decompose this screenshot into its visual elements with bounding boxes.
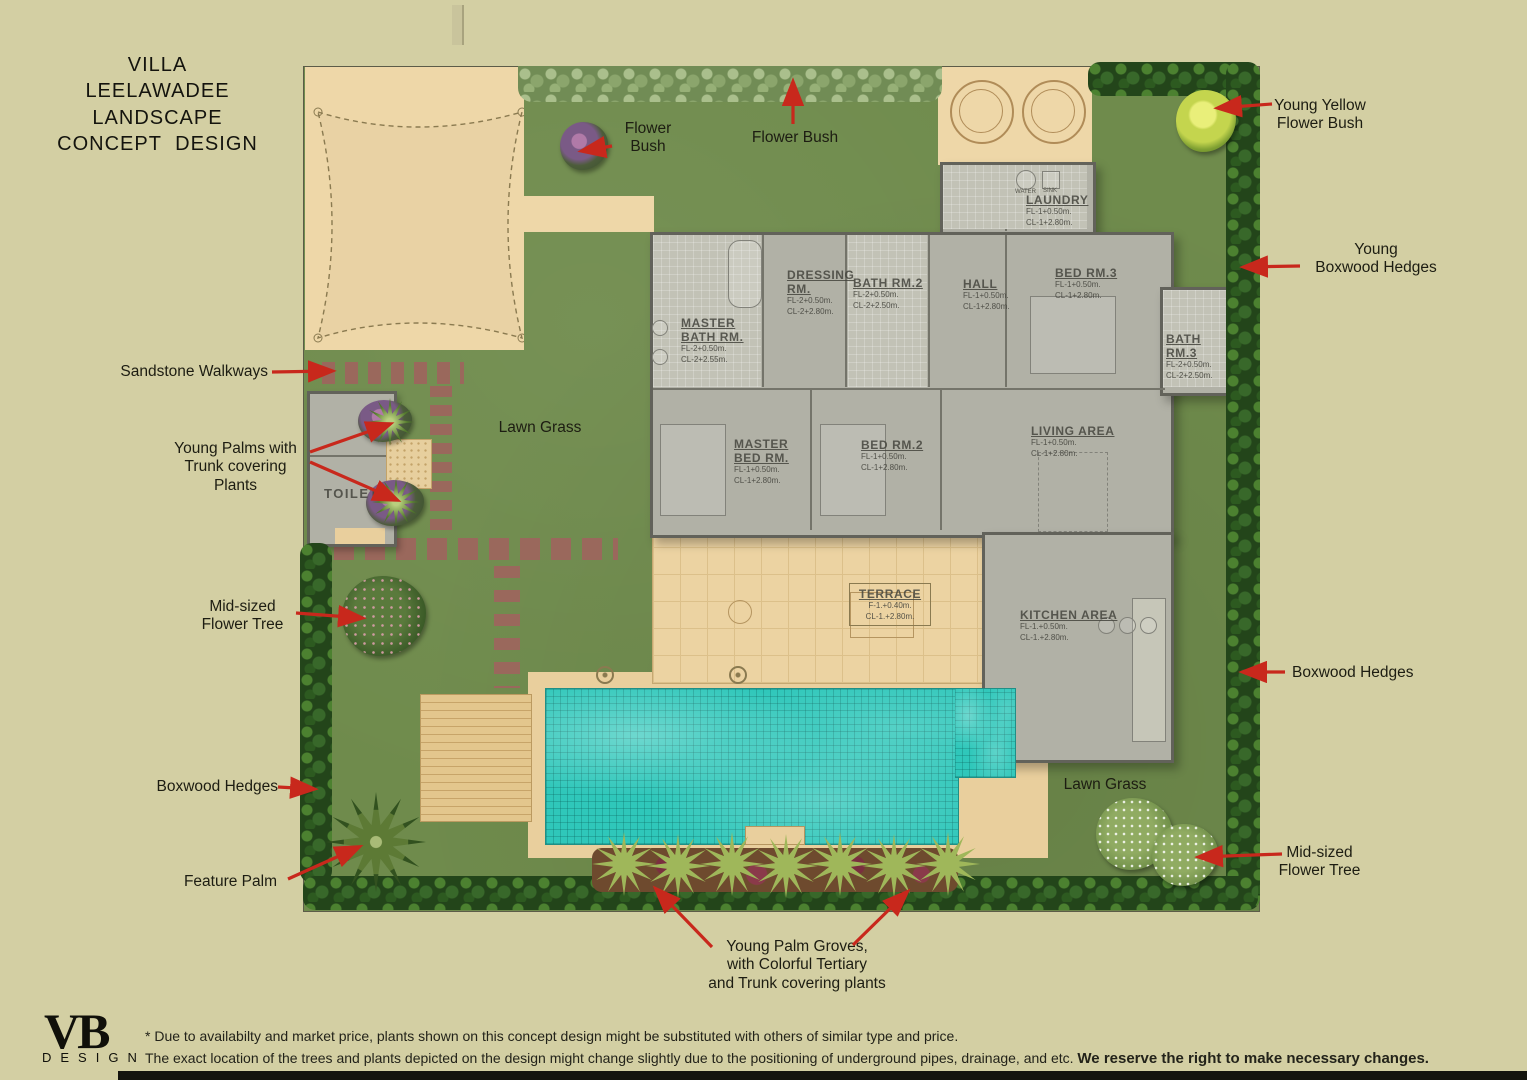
room-label-kitchen: KITCHEN AREA FL-1.+0.50m. CL-1.+2.80m.	[1020, 608, 1117, 643]
swimming-pool-extension	[955, 688, 1016, 778]
room-label-hall: HALL FL-1+0.50m. CL-1+2.80m.	[963, 277, 1009, 312]
annotation-young-yellow-flower-bush: Young Yellow Flower Bush	[1260, 97, 1380, 134]
sink	[652, 349, 668, 365]
annotation-lawn-grass-left: Lawn Grass	[495, 419, 585, 437]
annotation-boxwood-hedges-right: Boxwood Hedges	[1292, 664, 1427, 682]
pool-step	[745, 826, 805, 845]
annotation-mid-flower-tree-right: Mid-sized Flower Tree	[1272, 844, 1367, 881]
room-label-master-bath: MASTER BATH RM. FL-2+0.50m. CL-2+2.55m.	[681, 316, 744, 365]
room-label-terrace: TERRACE F-1.+0.40m. CL-1.+2.80m.	[849, 583, 931, 626]
stove-burner	[1119, 617, 1136, 634]
sandstone-walkway-column	[494, 566, 520, 688]
annotation-sandstone-walkways: Sandstone Walkways	[78, 363, 268, 381]
room-label-bath2: BATH RM.2 FL-2+0.50m. CL-2+2.50m.	[853, 276, 923, 311]
entry-path-sand	[522, 196, 654, 232]
bottom-edge-strip	[118, 1071, 1527, 1080]
water-tank-circle	[959, 89, 1003, 133]
room-label-bath3: BATH RM.3 FL-2+0.50m. CL-2+2.50m.	[1166, 332, 1212, 381]
wall	[762, 235, 764, 387]
room-label-bed3: BED RM.3 FL-1+0.50m. CL-1+2.80m.	[1055, 266, 1117, 301]
title-line: LANDSCAPE	[50, 105, 265, 131]
annotation-young-boxwood-hedges: Young Boxwood Hedges	[1297, 241, 1455, 278]
terrace-floor	[652, 532, 984, 684]
sandstone-walkway-column	[430, 386, 452, 534]
living-rug	[1038, 452, 1108, 532]
wall	[310, 455, 388, 457]
fold-mark	[452, 5, 464, 45]
boxwood-hedge-right	[1226, 62, 1260, 910]
vb-logo-design-text: DESIGN	[42, 1050, 146, 1065]
room-label-dressing: DRESSING RM. FL-2+0.50m. CL-2+2.80m.	[787, 268, 854, 317]
flower-bush-hedge-top	[518, 66, 942, 102]
annotation-boxwood-hedges-left: Boxwood Hedges	[118, 778, 278, 796]
annotation-feature-palm: Feature Palm	[147, 873, 277, 891]
wall	[940, 390, 942, 530]
room-label-toilet: TOILET	[324, 486, 379, 501]
laundry-sink-fixture	[1042, 171, 1060, 189]
terrace-table	[728, 600, 752, 624]
annotation-lawn-grass-right: Lawn Grass	[1060, 776, 1150, 794]
wall	[653, 388, 1165, 390]
swimming-pool	[545, 688, 959, 845]
disclaimer-line-1: * Due to availabilty and market price, p…	[145, 1028, 958, 1044]
water-tank-circle	[1031, 89, 1075, 133]
annotation-flower-bush-left: Flower Bush	[612, 120, 684, 157]
title-line: CONCEPT DESIGN	[50, 131, 265, 157]
annotation-young-palms: Young Palms with Trunk covering Plants	[158, 440, 313, 495]
boxwood-hedge-left	[300, 543, 332, 883]
landscape-concept-sheet: WATER SINK MASTER BATH RM. FL-2+0.50m. C…	[0, 0, 1527, 1080]
toilet-stoop	[335, 528, 385, 544]
disclaimer-line-2: The exact location of the trees and plan…	[145, 1050, 1429, 1067]
page-title: VILLA LEELAWADEE LANDSCAPE CONCEPT DESIG…	[50, 52, 265, 158]
sandstone-walkway-row	[322, 362, 464, 384]
bed-master	[660, 424, 726, 516]
room-label-master-bed: MASTER BED RM. FL-1+0.50m. CL-1+2.80m.	[734, 437, 789, 486]
bed-3	[1030, 296, 1116, 374]
annotation-flower-bush-top: Flower Bush	[743, 129, 847, 147]
wall	[810, 390, 812, 530]
title-line: VILLA LEELAWADEE	[50, 52, 265, 105]
wooden-deck	[420, 694, 532, 822]
terrace-column	[729, 666, 747, 684]
room-label-bed2: BED RM.2 FL-1+0.50m. CL-1+2.80m.	[861, 438, 923, 473]
room-label-living: LIVING AREA FL-1+0.50m. CL-1+2.80m.	[1031, 424, 1115, 459]
bath2-floor	[848, 235, 927, 387]
laundry-water-fixture	[1016, 170, 1036, 190]
stove-burner	[1140, 617, 1157, 634]
room-label-laundry: LAUNDRY FL-1+0.50m. CL-1+2.80m.	[1026, 193, 1088, 228]
shade-sail	[306, 68, 524, 350]
terrace-column	[596, 666, 614, 684]
bathtub	[728, 240, 762, 308]
sink	[652, 320, 668, 336]
disclaimer-emphasis: We reserve the right to make necessary c…	[1077, 1050, 1429, 1067]
annotation-young-palm-groves: Young Palm Groves, with Colorful Tertiar…	[688, 938, 906, 993]
wall	[928, 235, 930, 387]
annotation-mid-flower-tree-left: Mid-sized Flower Tree	[180, 598, 305, 635]
